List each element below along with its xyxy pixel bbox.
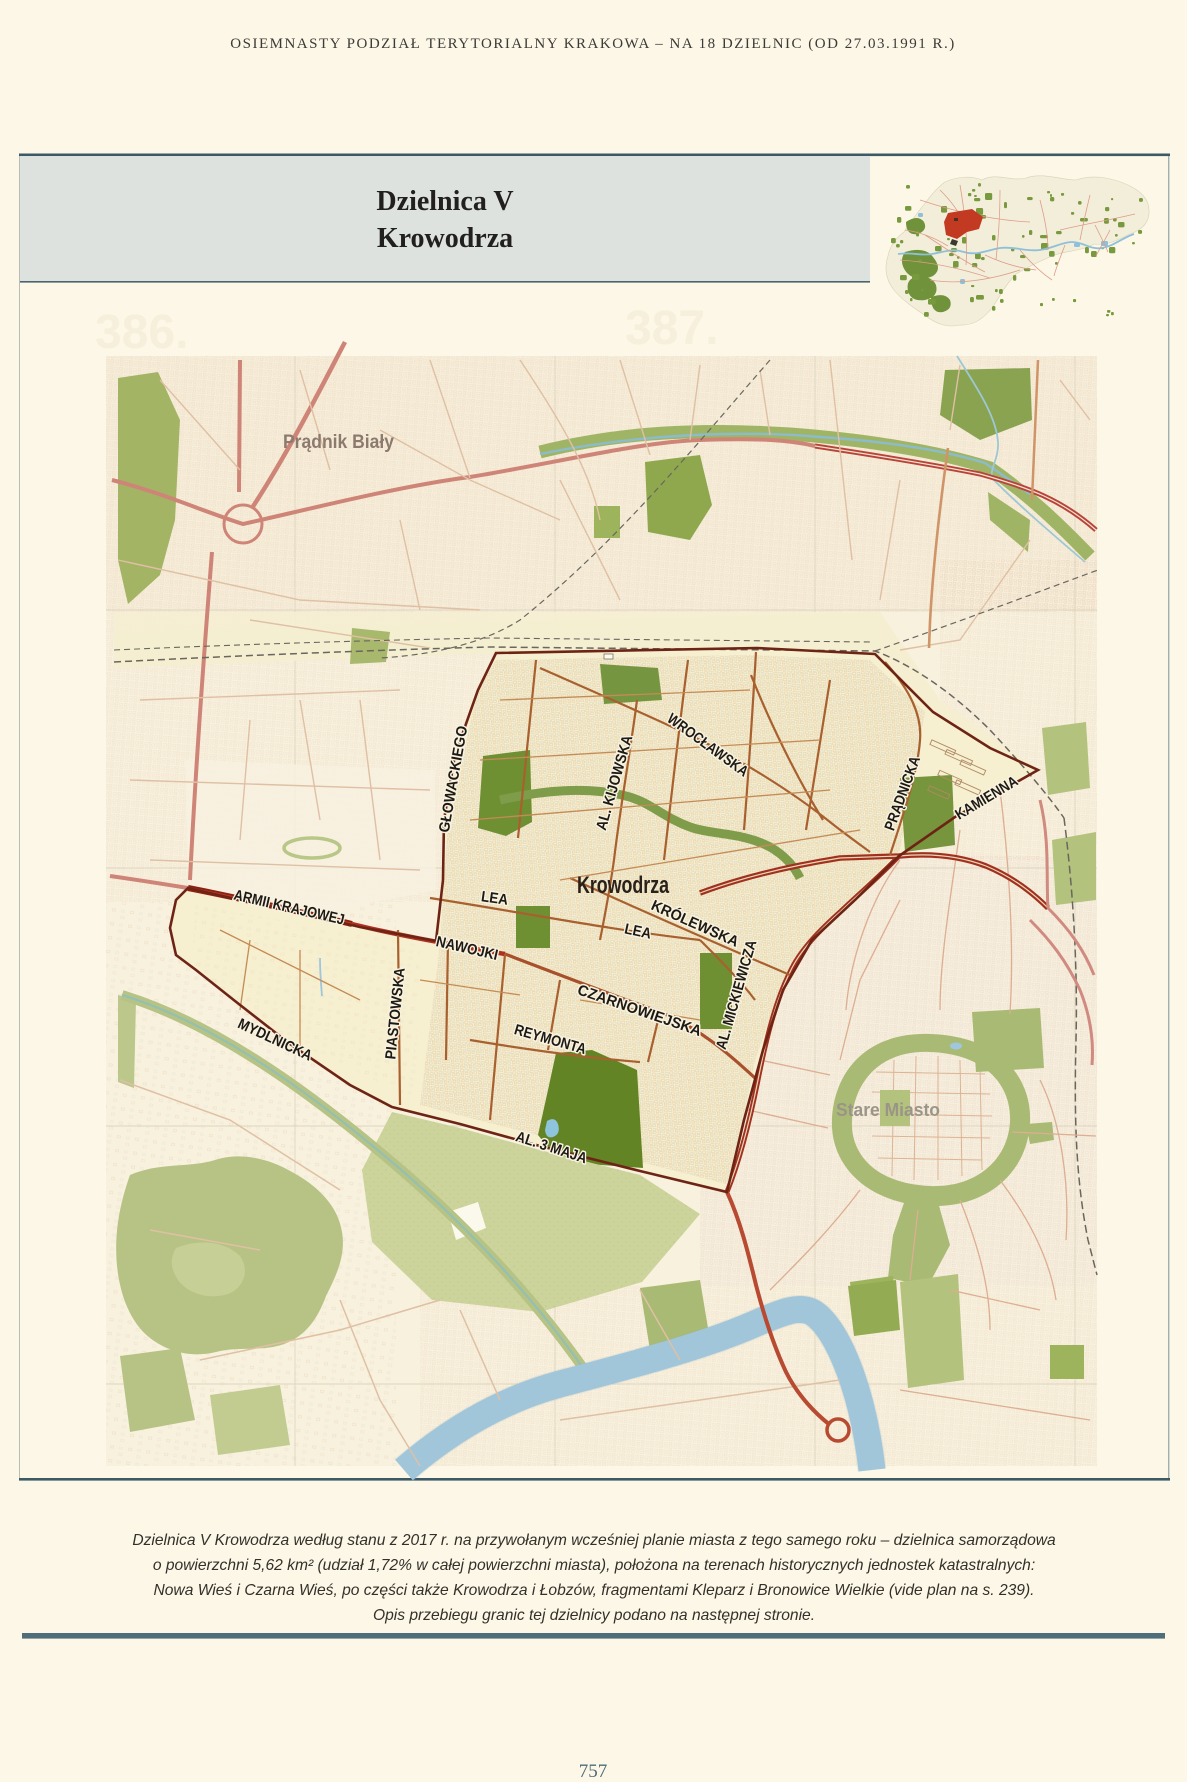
svg-text:Dzielnica V: Dzielnica V xyxy=(376,186,513,217)
svg-text:o powierzchni 5,62 km² (udział: o powierzchni 5,62 km² (udział 1,72% w c… xyxy=(153,1557,1035,1574)
svg-text:Krowodrza: Krowodrza xyxy=(377,223,513,254)
svg-text:387.: 387. xyxy=(625,302,718,355)
svg-text:Krowodrza: Krowodrza xyxy=(577,872,669,899)
svg-text:Stare Miasto: Stare Miasto xyxy=(836,1100,940,1120)
svg-text:Opis przebiegu granic tej dzie: Opis przebiegu granic tej dzielnicy poda… xyxy=(373,1607,815,1624)
svg-text:Nowa Wieś i Czarna Wieś, po cz: Nowa Wieś i Czarna Wieś, po części także… xyxy=(154,1582,1035,1599)
svg-text:Dzielnica V Krowodrza według s: Dzielnica V Krowodrza według stanu z 201… xyxy=(132,1532,1056,1549)
svg-text:OSIEMNASTY PODZIAŁ TERYTORIALN: OSIEMNASTY PODZIAŁ TERYTORIALNY KRAKOWA … xyxy=(230,36,955,52)
svg-text:386.: 386. xyxy=(95,306,188,359)
svg-text:757: 757 xyxy=(579,1761,608,1782)
svg-text:Prądnik Biały: Prądnik Biały xyxy=(283,432,394,453)
